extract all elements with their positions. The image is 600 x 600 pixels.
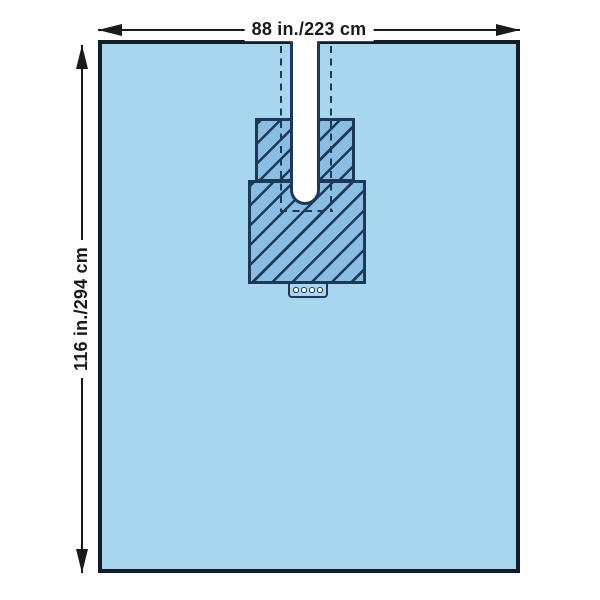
tab-hole	[309, 287, 315, 293]
width-dimension-label: 88 in./223 cm	[245, 19, 374, 41]
width-arrowhead-left-icon	[98, 24, 122, 36]
tube-organizer-tab	[288, 284, 328, 298]
fenestration-slit	[290, 38, 320, 205]
height-arrowhead-top-icon	[76, 45, 88, 69]
dashed-fold-line-right	[330, 46, 333, 212]
height-arrowhead-bottom-icon	[76, 549, 88, 573]
width-arrowhead-right-icon	[496, 24, 520, 36]
drape-diagram-canvas: 88 in./223 cm 116 in./294 cm	[0, 0, 600, 600]
dashed-fold-line-bottom	[280, 210, 333, 213]
tab-hole	[301, 287, 307, 293]
height-dimension-label: 116 in./294 cm	[71, 240, 93, 378]
dashed-fold-line-left	[280, 46, 283, 212]
tab-hole	[317, 287, 323, 293]
tab-hole	[293, 287, 299, 293]
